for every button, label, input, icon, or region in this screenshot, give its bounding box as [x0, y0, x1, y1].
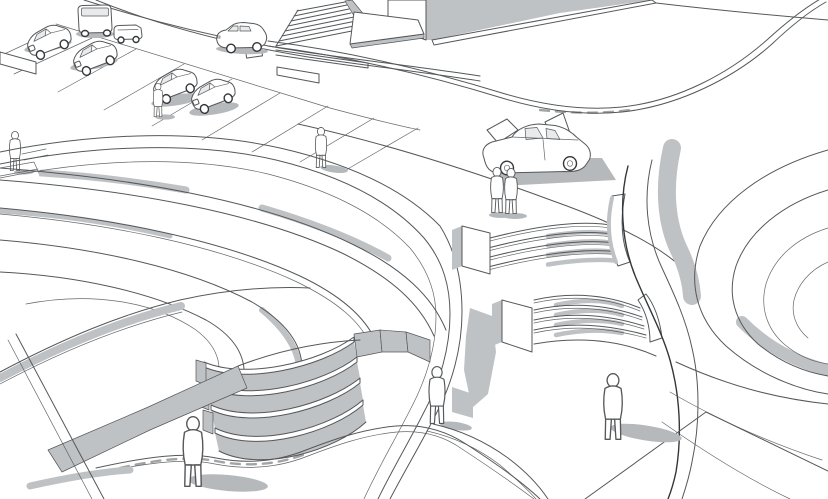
- end-wall-block: [380, 330, 408, 352]
- end-wall-block: [354, 330, 382, 357]
- end-block: [203, 410, 213, 434]
- end-block-side: [452, 226, 462, 270]
- person-shadow: [155, 114, 175, 119]
- sketch-rendering: [0, 0, 828, 499]
- parked-van: [78, 5, 112, 37]
- end-block: [462, 226, 490, 274]
- scene: [0, 0, 828, 499]
